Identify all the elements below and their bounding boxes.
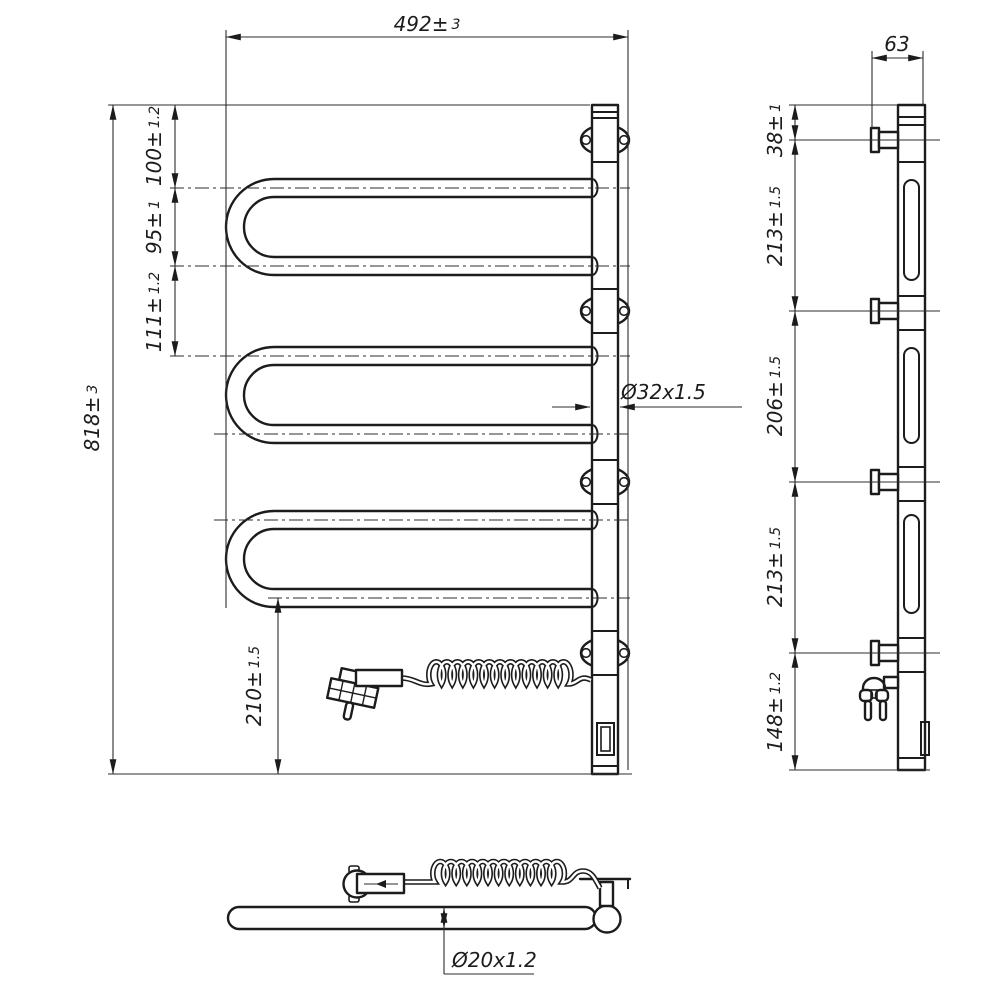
riser-circle <box>594 906 621 933</box>
dimension-labels: 492±3 100±1.2 95±1 111±1.2 818±3 210±1.5… <box>80 12 910 972</box>
power-cord <box>402 662 591 685</box>
dim-width-label: 492±3 <box>394 12 461 36</box>
plug-rear-view <box>344 866 405 902</box>
plug-prong <box>343 702 353 720</box>
drawing-sheet: 492±3 100±1.2 95±1 111±1.2 818±3 210±1.5… <box>0 0 1000 1000</box>
dim-depth-label: 63 <box>884 32 909 56</box>
front-view <box>170 105 630 774</box>
side-profile-bar <box>898 105 925 770</box>
plug-prong <box>865 701 871 720</box>
dim-top-offset-label: 100±1.2 <box>142 106 166 186</box>
dim-bottom-offset-label: 210±1.5 <box>242 646 266 726</box>
wall-mount-fitting <box>580 879 630 906</box>
plug-prong <box>880 701 886 720</box>
dim-height-label: 818±3 <box>80 385 104 452</box>
bottom-cord <box>404 862 600 888</box>
dim-side-bottom-label: 148±1.2 <box>763 672 787 752</box>
dim-span-c-label: 213±1.5 <box>763 527 787 607</box>
riser-tube-label: Ø32x1.5 <box>620 380 706 404</box>
dim-loop-gap-label: 111±1.2 <box>142 272 166 352</box>
side-plug <box>860 677 898 720</box>
bottom-view <box>228 862 630 933</box>
dim-tube-pitch-label: 95±1 <box>142 200 166 254</box>
dim-span-a-label: 213±1.5 <box>763 186 787 266</box>
heating-loop-3 <box>226 511 598 607</box>
heating-loop-1 <box>226 179 598 275</box>
dim-span-b-label: 206±1.5 <box>763 356 787 436</box>
heating-loop-2 <box>226 347 598 443</box>
dimension-layer: 492±3 100±1.2 95±1 111±1.2 818±3 210±1.5… <box>80 12 940 974</box>
dimension-lines <box>113 37 923 974</box>
rail-tube-bottom <box>228 907 596 929</box>
power-plug <box>324 667 402 725</box>
technical-drawing-canvas: 492±3 100±1.2 95±1 111±1.2 818±3 210±1.5… <box>0 0 1000 1000</box>
side-view <box>860 105 929 770</box>
plug-body <box>356 670 402 686</box>
rail-tube-label: Ø20x1.2 <box>451 948 537 972</box>
tube-centerlines <box>170 188 630 598</box>
wall-brackets <box>871 128 898 665</box>
dim-side-top-label: 38±1 <box>763 103 787 157</box>
